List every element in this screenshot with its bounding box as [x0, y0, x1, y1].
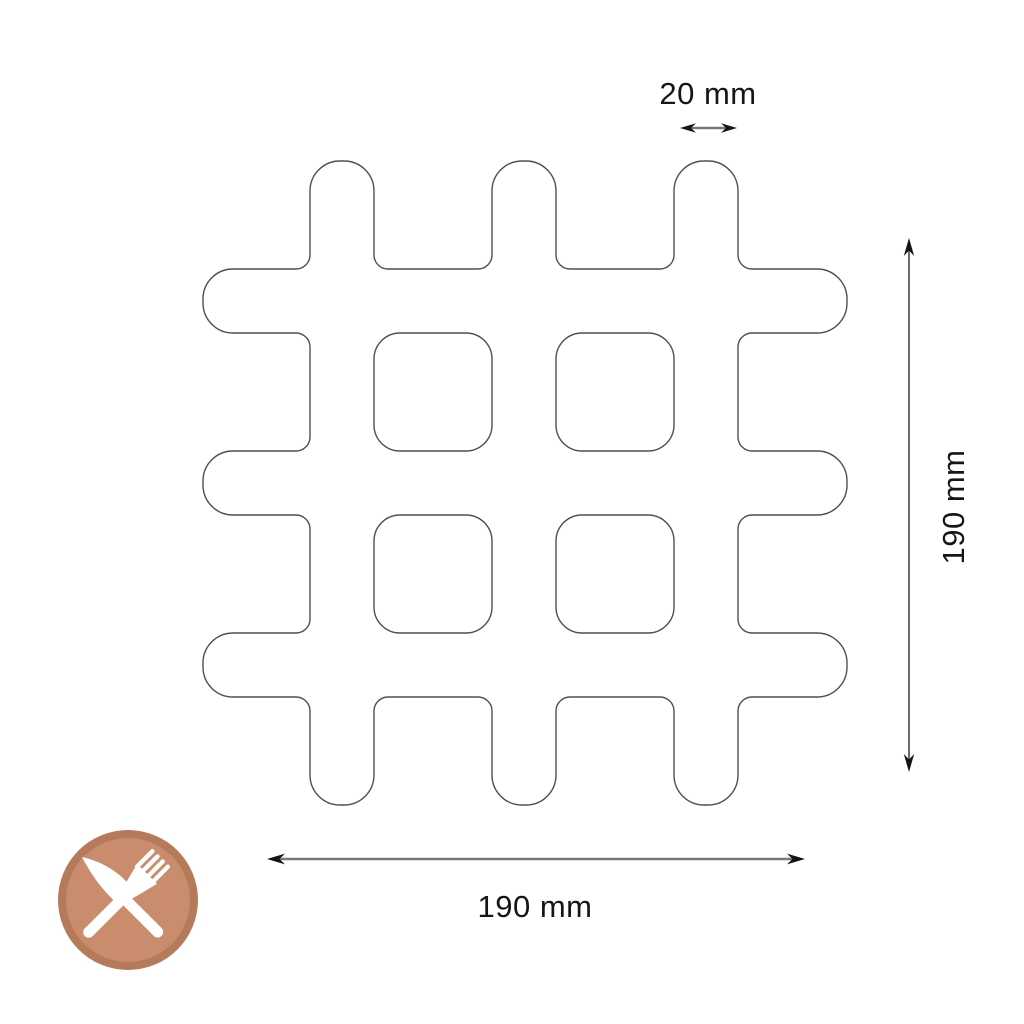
trivet-outline	[203, 161, 847, 805]
width-dimension	[267, 854, 805, 865]
height-dimension-label: 190 mm	[936, 450, 972, 565]
bar-width-dimension	[680, 123, 737, 133]
trivet-diagram	[0, 0, 1024, 1024]
height-dimension	[904, 238, 914, 772]
width-dimension-label: 190 mm	[478, 889, 593, 925]
product-dimension-diagram: 20 mm 190 mm 190 mm	[0, 0, 1024, 1024]
bar-width-dimension-label: 20 mm	[659, 76, 756, 112]
cutlery-badge	[58, 830, 198, 970]
